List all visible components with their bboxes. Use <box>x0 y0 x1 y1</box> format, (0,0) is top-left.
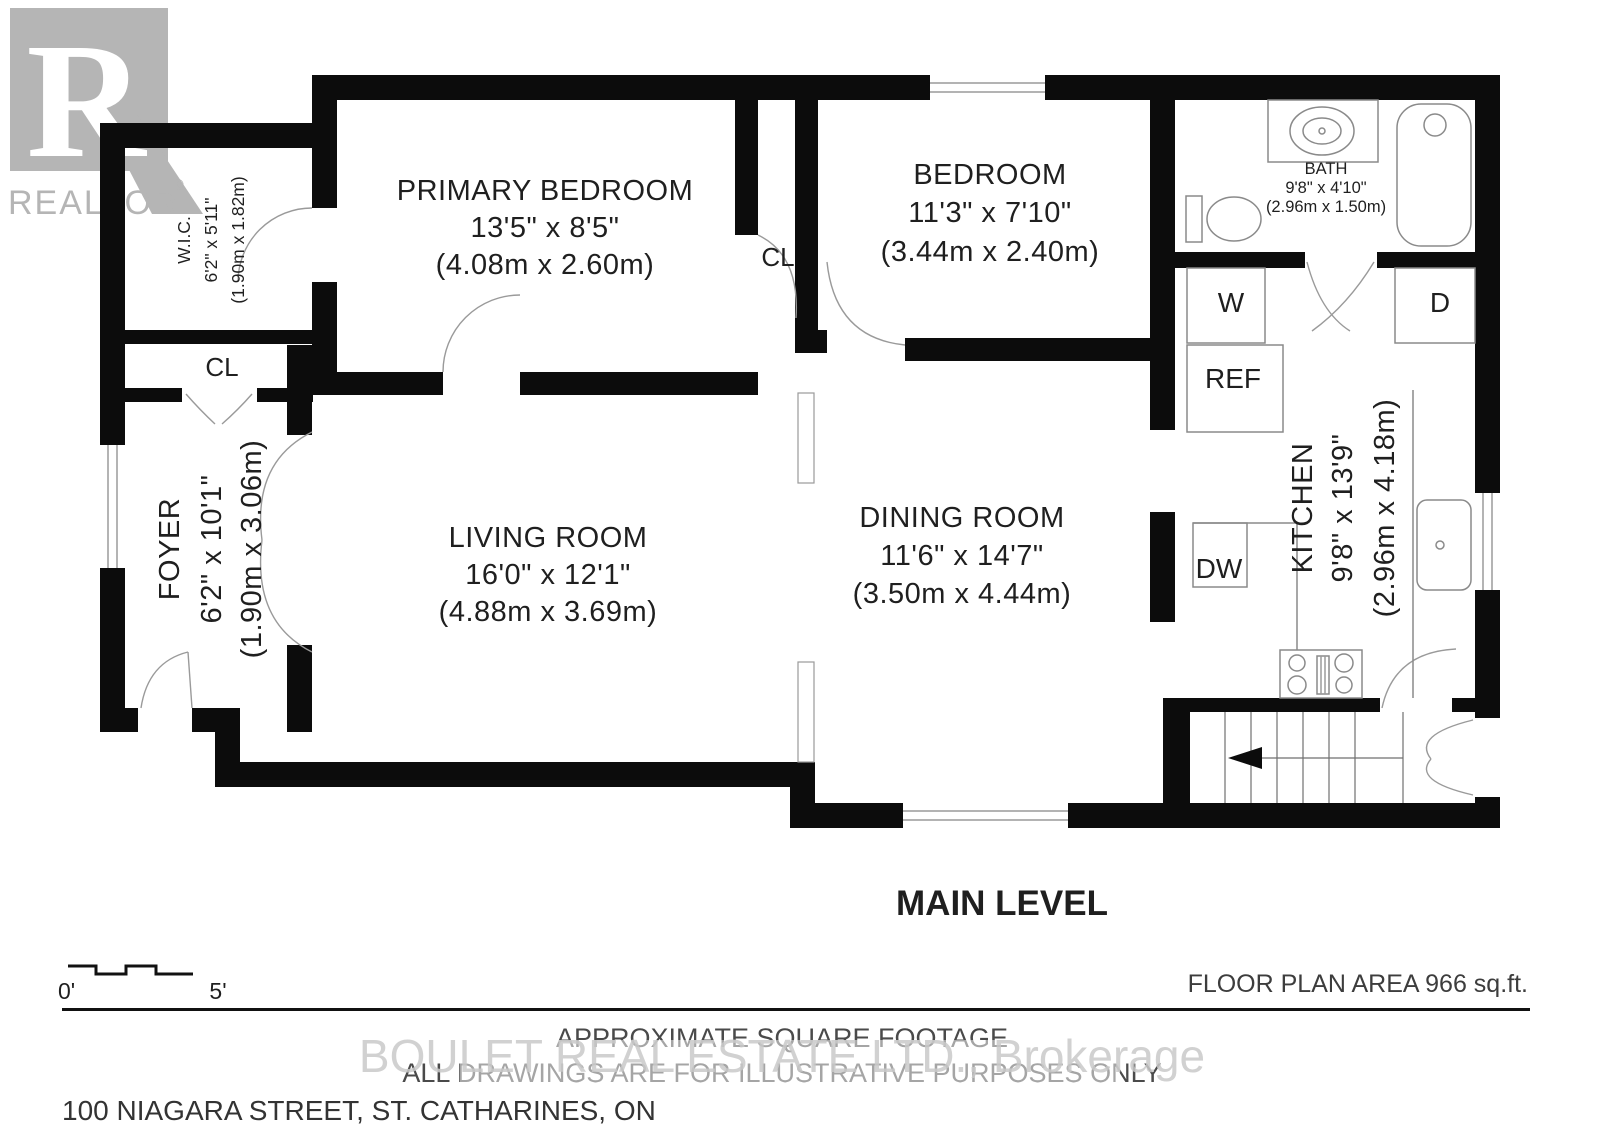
wall <box>100 388 182 402</box>
floor-area-label: FLOOR PLAN AREA 966 sq.ft. <box>1188 970 1528 998</box>
bedroom-dims-ft: 11'3" x 7'10" <box>908 197 1071 229</box>
stove-icon <box>1280 650 1362 698</box>
wall <box>520 372 758 395</box>
floor-plan-svg: R REALTOR ® <box>0 0 1600 1131</box>
bedroom-label: BEDROOM 11'3" x 7'10" (3.44m x 2.40m) <box>881 159 1100 268</box>
wall <box>795 100 818 330</box>
wall <box>735 100 758 235</box>
dining-room-name: DINING ROOM <box>859 502 1064 534</box>
closet-label-foyer: CL <box>205 352 238 382</box>
front-door-leaf <box>188 652 192 708</box>
wall <box>100 123 312 148</box>
realtor-wordmark: REALTOR <box>8 184 179 222</box>
side-entry-door-arc-2 <box>1426 759 1473 795</box>
primary-bedroom-dims-m: (4.08m x 2.60m) <box>436 249 655 281</box>
toilet-bowl-icon <box>1207 197 1261 241</box>
wall <box>192 708 240 732</box>
kitchen-dims-m: (2.96m x 4.18m) <box>1369 399 1401 618</box>
wic-door-arc <box>238 208 312 282</box>
dishwasher-label: DW <box>1196 553 1243 584</box>
wall <box>905 338 1150 361</box>
bath-door-leaf <box>1312 262 1374 331</box>
kitchen-sink-drain <box>1436 541 1444 549</box>
opening-post <box>798 662 814 762</box>
wall <box>312 75 930 100</box>
kitchen-window <box>1475 493 1500 590</box>
primary-bedroom-name: PRIMARY BEDROOM <box>397 175 693 207</box>
scale-start-label: 0' <box>58 978 75 1004</box>
bath-door-arc <box>1307 262 1350 331</box>
foyer-dims-m: (1.90m x 3.06m) <box>236 440 268 659</box>
wall <box>1150 252 1305 268</box>
dining-window <box>903 803 1068 828</box>
bath-sink-drain <box>1319 128 1325 134</box>
wall <box>1475 590 1500 718</box>
closet-label-hall: CL <box>761 242 794 272</box>
living-room-dims-ft: 16'0" x 12'1" <box>465 559 631 591</box>
dining-room-label: DINING ROOM 11'6" x 14'7" (3.50m x 4.44m… <box>853 502 1072 610</box>
wall <box>312 100 337 208</box>
living-room-dims-m: (4.88m x 3.69m) <box>439 596 658 628</box>
bath-vanity <box>1268 100 1378 162</box>
kitchen-door-arc <box>1382 649 1456 708</box>
wall <box>1475 100 1500 493</box>
bedroom-window <box>930 75 1045 100</box>
level-title: MAIN LEVEL <box>896 884 1108 923</box>
wall <box>100 568 125 732</box>
dining-room-dims-m: (3.50m x 4.44m) <box>853 578 1072 610</box>
wic-dims-ft: 6'2" x 5'11" <box>201 198 221 283</box>
foyer-name: FOYER <box>154 498 186 600</box>
living-room-label: LIVING ROOM 16'0" x 12'1" (4.88m x 3.69m… <box>439 522 658 628</box>
washer-label: W <box>1218 287 1245 318</box>
staircase <box>1225 712 1403 803</box>
stairs-direction-arrow-icon <box>1228 747 1262 769</box>
wall <box>1068 803 1500 828</box>
dryer-label: D <box>1430 287 1450 318</box>
wall <box>1163 698 1380 712</box>
brokerage-watermark: BOULET REAL ESTATE LTD., Brokerage <box>359 1030 1205 1082</box>
scale-end-label: 5' <box>209 978 226 1004</box>
living-room-name: LIVING ROOM <box>449 522 648 554</box>
realtor-logo-r: R <box>26 9 147 192</box>
foyer-window <box>100 445 125 568</box>
front-door-arc <box>141 652 188 708</box>
foyer-closet-door-arc <box>186 394 215 424</box>
foyer-living-door-arc-2 <box>261 540 312 652</box>
primary-bedroom-dims-ft: 13'5" x 8'5" <box>471 212 620 244</box>
foyer-label: FOYER 6'2" x 10'1" (1.90m x 3.06m) <box>154 440 268 659</box>
toilet-tank-icon <box>1186 196 1202 242</box>
wall <box>100 123 125 345</box>
primary-bedroom-door-arc <box>443 295 520 372</box>
foyer-living-door-arc <box>261 432 312 540</box>
kitchen-name: KITCHEN <box>1287 443 1319 574</box>
opening-post <box>798 393 814 483</box>
wall <box>1377 252 1500 268</box>
wall <box>100 330 312 344</box>
bath-sink-icon <box>1290 107 1354 155</box>
bath-name: BATH <box>1305 160 1348 178</box>
bath-label: BATH 9'8" x 4'10" (2.96m x 1.50m) <box>1266 160 1386 216</box>
registered-mark-icon: ® <box>172 177 184 194</box>
bath-sink-bowl <box>1303 118 1341 144</box>
bath-dims-m: (2.96m x 1.50m) <box>1266 198 1386 216</box>
primary-bedroom-label: PRIMARY BEDROOM 13'5" x 8'5" (4.08m x 2.… <box>397 175 693 281</box>
bath-dims-ft: 9'8" x 4'10" <box>1285 179 1366 197</box>
bathtub-drain <box>1424 114 1446 136</box>
floor-plan-page: R REALTOR ® <box>0 0 1600 1131</box>
property-address: 100 NIAGARA STREET, ST. CATHARINES, ON <box>62 1095 656 1126</box>
wall <box>795 330 827 353</box>
bathtub-icon <box>1397 104 1471 246</box>
wic-dims-m: (1.90m x 1.82m) <box>228 176 248 303</box>
bedroom-name: BEDROOM <box>913 159 1066 191</box>
wall <box>1163 712 1190 828</box>
bedroom-dims-m: (3.44m x 2.40m) <box>881 236 1100 268</box>
wall <box>287 372 443 395</box>
wall <box>287 645 312 732</box>
wall <box>1150 512 1175 622</box>
footer-divider <box>62 1008 1530 1011</box>
side-entry-door-arc <box>1426 720 1473 759</box>
kitchen-dims-ft: 9'8" x 13'9" <box>1327 434 1359 583</box>
scale-bar-ruler <box>68 966 193 974</box>
kitchen-label: KITCHEN 9'8" x 13'9" (2.96m x 4.18m) <box>1287 399 1401 618</box>
scale-bar: 0' 5' <box>58 966 227 1004</box>
foyer-dims-ft: 6'2" x 10'1" <box>196 475 228 624</box>
wall <box>1045 75 1500 100</box>
wic-name: W.I.C. <box>174 216 194 264</box>
wall <box>215 762 815 787</box>
bedroom-door-arc <box>827 262 905 345</box>
dining-room-dims-ft: 11'6" x 14'7" <box>880 540 1043 572</box>
foyer-closet-door-leaf <box>222 394 252 424</box>
refrigerator-label: REF <box>1205 363 1261 394</box>
wall <box>1452 698 1475 712</box>
